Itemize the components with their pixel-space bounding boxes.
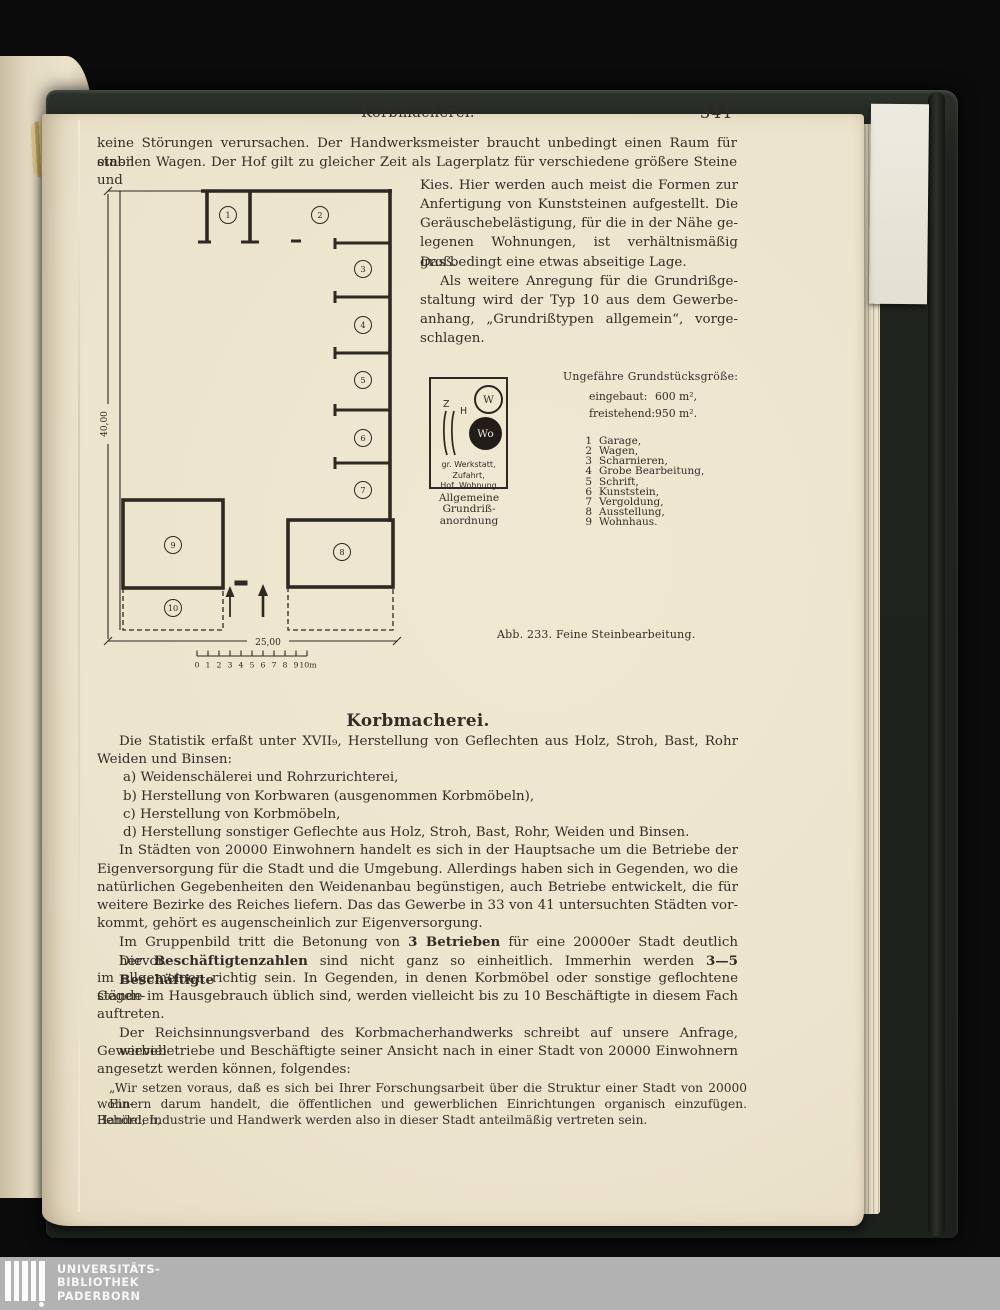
text-line: wohnern darum handelt, die öffentlichen … [97,1096,747,1112]
logo-bar [14,1261,20,1301]
text-line: angesetzt werden können, folgendes: [97,1061,738,1079]
text-run: Die [119,954,154,969]
scale-label: 8 [283,661,288,670]
library-name: UNIVERSITÄTS- BIBLIOTHEK PADERBORN [57,1263,160,1303]
text-line: Geräuschebelästigung, für die in der Näh… [420,214,738,233]
workshop-symbol: W [474,385,503,414]
room-number: 9 [170,540,175,550]
scale-label: 1 [206,661,211,670]
section-heading: Korbmacherei. [308,710,528,730]
text-line: d) Herstellung sonstiger Geflechte aus H… [97,824,738,842]
room-number: 1 [225,210,230,220]
text-line: b) Herstellung von Korbwaren (ausgenomme… [97,788,738,806]
height-dimension-label: 40,00 [100,411,110,437]
page-number: 341 [700,103,734,122]
main-text-block: Die Statistik erfaßt unter XVII₉, Herste… [97,733,738,1079]
text-line: a) Weidenschälerei und Rohrzurichterei, [97,769,738,787]
text-line: anhang, „Grundrißtypen allgemein“, vorge… [420,310,738,329]
text-line: In Städten von 20000 Einwohnern handelt … [97,842,738,860]
plot-size-title: Ungefähre Grundstücksgröße: [563,370,738,383]
plot-size-value: 950 m². [655,407,697,420]
legend-title: Allgemeine Grundriß- anordnung [429,493,509,527]
plot-size-label: eingebaut: [589,388,655,405]
list-item: 9Wohnhaus. [584,517,704,527]
text-line: „Wir setzen voraus, daß es sich bei Ihre… [97,1080,747,1096]
plot-size-row: freistehend:950 m². [589,405,697,422]
scale-labels: 0 1 2 3 4 5 6 7 8 9 10m [195,661,318,670]
room-number: 2 [317,210,322,220]
library-name-line: PADERBORN [57,1290,160,1303]
text-run-bold: 3 Betrieben [408,934,500,950]
room-number: 8 [339,547,344,557]
legend-symbol-caption: gr. Werkstatt, Zufahrt, Hof, Wohnung [432,460,505,492]
text-line: stabilen Wagen. Der Hof gilt zu gleicher… [97,154,737,173]
dashed-plot-outline [123,587,393,630]
legend-title-line: Grundriß- [429,504,509,515]
legend-h-label: H [460,406,467,417]
dwelling-symbol: Wo [469,417,502,450]
scale-label: 4 [239,661,244,670]
logo-bar [31,1261,37,1301]
scale-label: 6 [261,661,266,670]
plot-boundary [104,187,401,645]
text-line: c) Herstellung von Korbmöbeln, [97,806,738,824]
logo-dot [39,1302,44,1307]
library-watermark-band: UNIVERSITÄTS- BIBLIOTHEK PADERBORN [0,1257,1000,1310]
legend-caption-line: gr. Werkstatt, Zufahrt, [432,460,505,481]
width-dimension-label: 25,00 [255,638,281,648]
room-number: 4 [360,320,365,330]
legend-caption-line: Hof, Wohnung [432,481,505,492]
entrance-arrows [226,581,269,617]
room-number: 10 [168,603,179,613]
scale-label: 10m [299,661,317,670]
text-line: keine Störungen verursachen. Der Handwer… [97,135,737,154]
text-line: Eigenversorgung für die Stadt und die Um… [97,861,738,879]
text-line: Der Reichsinnungsverband des Korbmacherh… [97,1025,738,1043]
text-line: kommt, gehört es augenscheinlich zur Eig… [97,915,738,933]
text-line: Im Gruppenbild tritt die Betonung von 3 … [97,933,738,951]
list-item-number: 9 [584,517,592,527]
text-run: sind nicht ganz so einheitlich. Immerhin… [308,954,706,969]
scale-bar [197,651,307,657]
page-gutter-crease [78,120,80,1212]
book-spine-ridge [928,92,945,1236]
plot-size-row: eingebaut:600 m², [589,388,697,405]
scanned-book-photo: Korbmacherei. 341 keine Störungen verurs… [0,0,1000,1310]
scale-label: 5 [250,661,255,670]
building-walls [123,189,393,588]
text-run: Im Gruppenbild tritt die Betonung von [119,935,408,950]
scale-label: 7 [272,661,277,670]
text-line: Kies. Hier werden auch meist die Formen … [420,176,738,195]
scale-label: 2 [217,661,222,670]
text-line: Die Statistik erfaßt unter XVII₉, Herste… [97,733,738,751]
driveway-symbol-icon [441,409,459,457]
scale-label: 9 [294,661,299,670]
text-line: legenen Wohnungen, ist verhältnismäßig g… [420,233,738,252]
room-legend-list: 1Garage, 2Wagen, 3Scharnieren, 4Grobe Be… [584,436,704,527]
workshop-symbol-label: W [483,394,494,406]
scale-label: 3 [228,661,233,670]
text-line: Als weitere Anregung für die Grundrißge- [420,272,738,291]
intro-paragraph: keine Störungen verursachen. Der Handwer… [97,135,737,172]
library-name-line: BIBLIOTHEK [57,1276,160,1289]
text-line: auftreten. [97,1006,738,1024]
text-run-bold: Beschäftigtenzahlen [154,953,308,969]
floor-plan-figure: 40,00 25,00 [95,178,415,678]
room-number: 7 [360,485,365,495]
text-line: Weiden und Binsen: [97,751,738,769]
legend-title-line: anordnung [429,516,509,527]
text-line: Gewerbebetriebe und Beschäftigte seiner … [97,1043,738,1061]
text-line: Das bedingt eine etwas abseitige Lage. [420,253,738,272]
right-column-text: Kies. Hier werden auch meist die Formen … [420,176,738,348]
library-name-line: UNIVERSITÄTS- [57,1263,160,1276]
logo-bar [5,1261,11,1301]
text-line: Anfertigung von Kunststeinen aufgestellt… [420,195,738,214]
logo-bar [22,1261,28,1301]
text-line: im allgemeinen richtig sein. In Gegenden… [97,970,738,988]
text-line: Die Beschäftigtenzahlen sind nicht ganz … [97,952,738,970]
room-number: 5 [360,375,365,385]
room-number: 6 [360,433,365,443]
dwelling-symbol-label: Wo [477,428,493,440]
running-head: Korbmacherei. [308,105,528,121]
plot-size-label: freistehend: [589,405,655,422]
plot-size-rows: eingebaut:600 m², freistehend:950 m². [589,388,697,422]
list-item-label: Wohnhaus. [599,516,657,528]
quote-paragraph: „Wir setzen voraus, daß es sich bei Ihre… [97,1080,747,1129]
scale-label: 0 [195,661,200,670]
legend-symbol-box: Z H W Wo gr. Werkstatt, Zufahrt, Hof, Wo… [429,377,508,489]
text-line: weitere Bezirke des Reiches liefern. Das… [97,897,738,915]
text-line: Handel, Industrie und Handwerk werden al… [97,1112,747,1128]
text-line: natürlichen Gegebenheiten den Weidenanba… [97,879,738,897]
room-number: 3 [360,264,365,274]
text-line: staltung wird der Typ 10 aus dem Gewerbe… [420,291,738,310]
text-line: schlagen. [420,329,738,348]
figure-caption: Abb. 233. Feine Steinbearbeitung. [497,628,695,641]
insert-card [869,104,929,305]
plot-size-value: 600 m², [655,390,697,403]
text-line: stände im Hausgebrauch üblich sind, werd… [97,988,738,1006]
logo-bar [39,1261,45,1301]
